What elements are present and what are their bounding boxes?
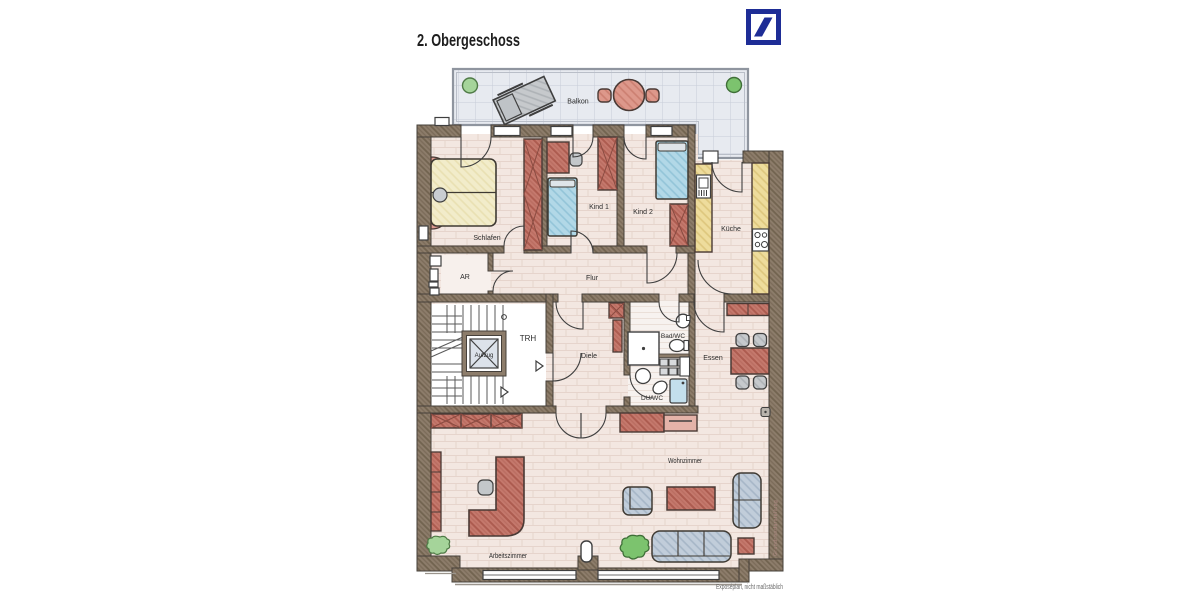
svg-text:Arbeitszimmer: Arbeitszimmer [489, 553, 528, 560]
svg-text:AR: AR [460, 274, 470, 281]
svg-text:Grundrissdarstellung: Grundrissdarstellung [773, 500, 779, 556]
svg-text:Küche: Küche [721, 226, 741, 233]
svg-text:Bad/WC: Bad/WC [661, 333, 686, 340]
svg-text:Aufzug: Aufzug [475, 353, 494, 359]
svg-text:Exposéplan, nicht maßstäblich: Exposéplan, nicht maßstäblich [716, 584, 783, 591]
svg-text:Flur: Flur [586, 275, 599, 282]
svg-text:Wohnzimmer: Wohnzimmer [668, 458, 703, 465]
svg-text:Schlafen: Schlafen [473, 235, 500, 242]
svg-text:Kind 2: Kind 2 [633, 209, 653, 216]
svg-text:TRH: TRH [520, 334, 537, 343]
svg-text:Essen: Essen [703, 355, 723, 362]
svg-text:Balkon: Balkon [567, 99, 589, 106]
svg-text:2. Obergeschoss: 2. Obergeschoss [417, 30, 520, 50]
svg-text:Diele: Diele [581, 353, 597, 360]
svg-text:Kind 1: Kind 1 [589, 204, 609, 211]
